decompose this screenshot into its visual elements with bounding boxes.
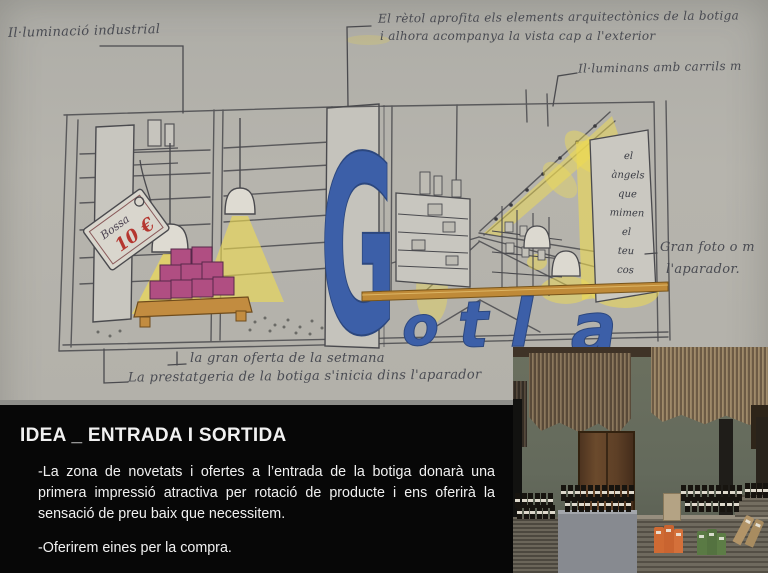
orange-product-pack <box>654 527 664 553</box>
annotation-shelving-window: La prestatgeria de la botiga s'inicia di… <box>128 367 482 385</box>
hanging-fiber-panel-left <box>529 353 631 435</box>
green-product-pack <box>697 531 707 555</box>
orange-product-pack <box>674 529 683 553</box>
sign-letter-o: o <box>400 294 440 359</box>
panel-title: IDEA _ ENTRADA I SORTIDA <box>20 425 513 447</box>
annotation-big-photo-2: l'aparador. <box>666 262 740 277</box>
shop-interior-photo <box>513 347 768 573</box>
panel-paragraph-1: -La zona de novetats i ofertes a l’entra… <box>38 462 495 525</box>
photo-slate-table-left <box>513 517 558 573</box>
green-product-pack <box>707 529 717 555</box>
annotation-sign-architecture-2: i alhora acompanya la vista cap a l'exte… <box>380 29 655 43</box>
poster-vertical-text: el àngels que mimen el teu cos <box>604 146 649 280</box>
photo-counter-sign <box>663 493 681 521</box>
annotation-big-photo-1: Gran foto o m <box>660 240 755 255</box>
panel-paragraph-2: -Oferirem eines per la compra. <box>38 538 495 559</box>
idea-text-panel: IDEA _ ENTRADA I SORTIDA -La zona de nov… <box>0 400 513 573</box>
presentation-slide: Bossa 10 € G <box>0 0 768 573</box>
photo-gray-plinth <box>558 510 637 573</box>
sign-letter-g: G <box>320 105 396 391</box>
sign-letter-t: t <box>457 288 493 363</box>
orange-product-pack <box>664 525 674 553</box>
green-product-pack <box>717 533 726 555</box>
annotation-weekly-offer: la gran oferta de la setmana <box>190 351 385 366</box>
